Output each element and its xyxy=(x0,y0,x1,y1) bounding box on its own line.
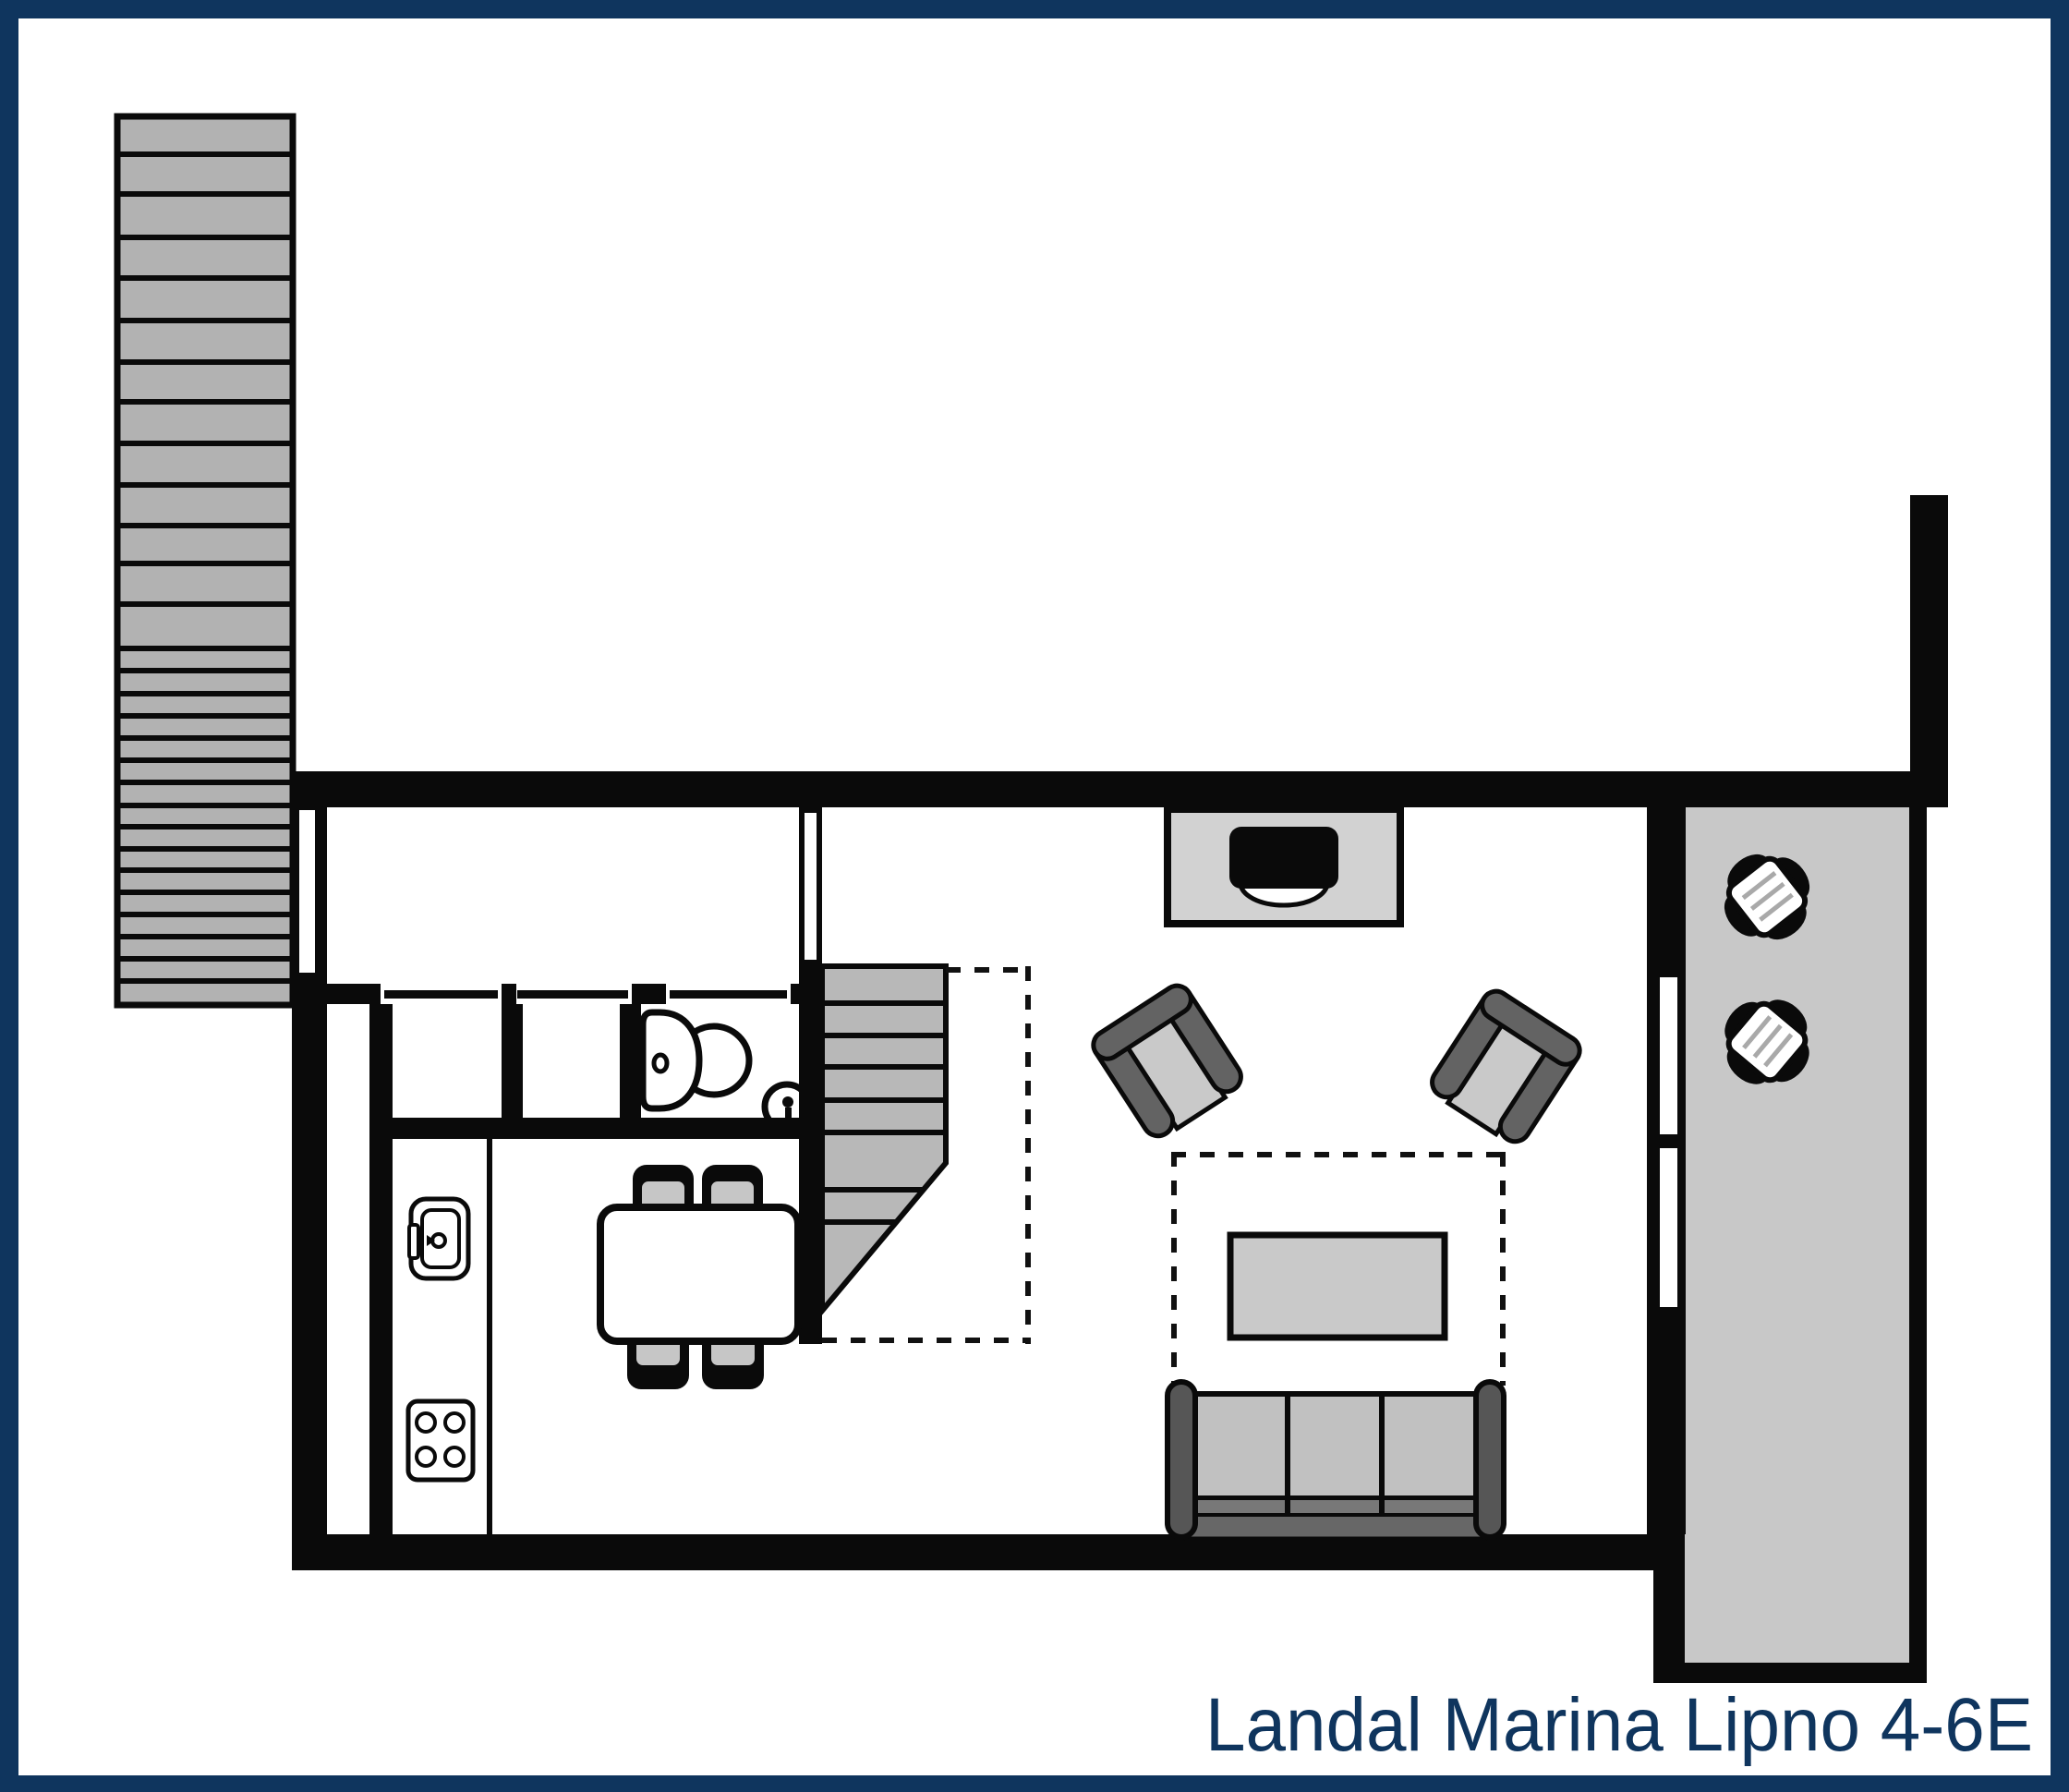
svg-text:Landal Marina Lipno 4-6E: Landal Marina Lipno 4-6E xyxy=(1205,1683,2033,1767)
